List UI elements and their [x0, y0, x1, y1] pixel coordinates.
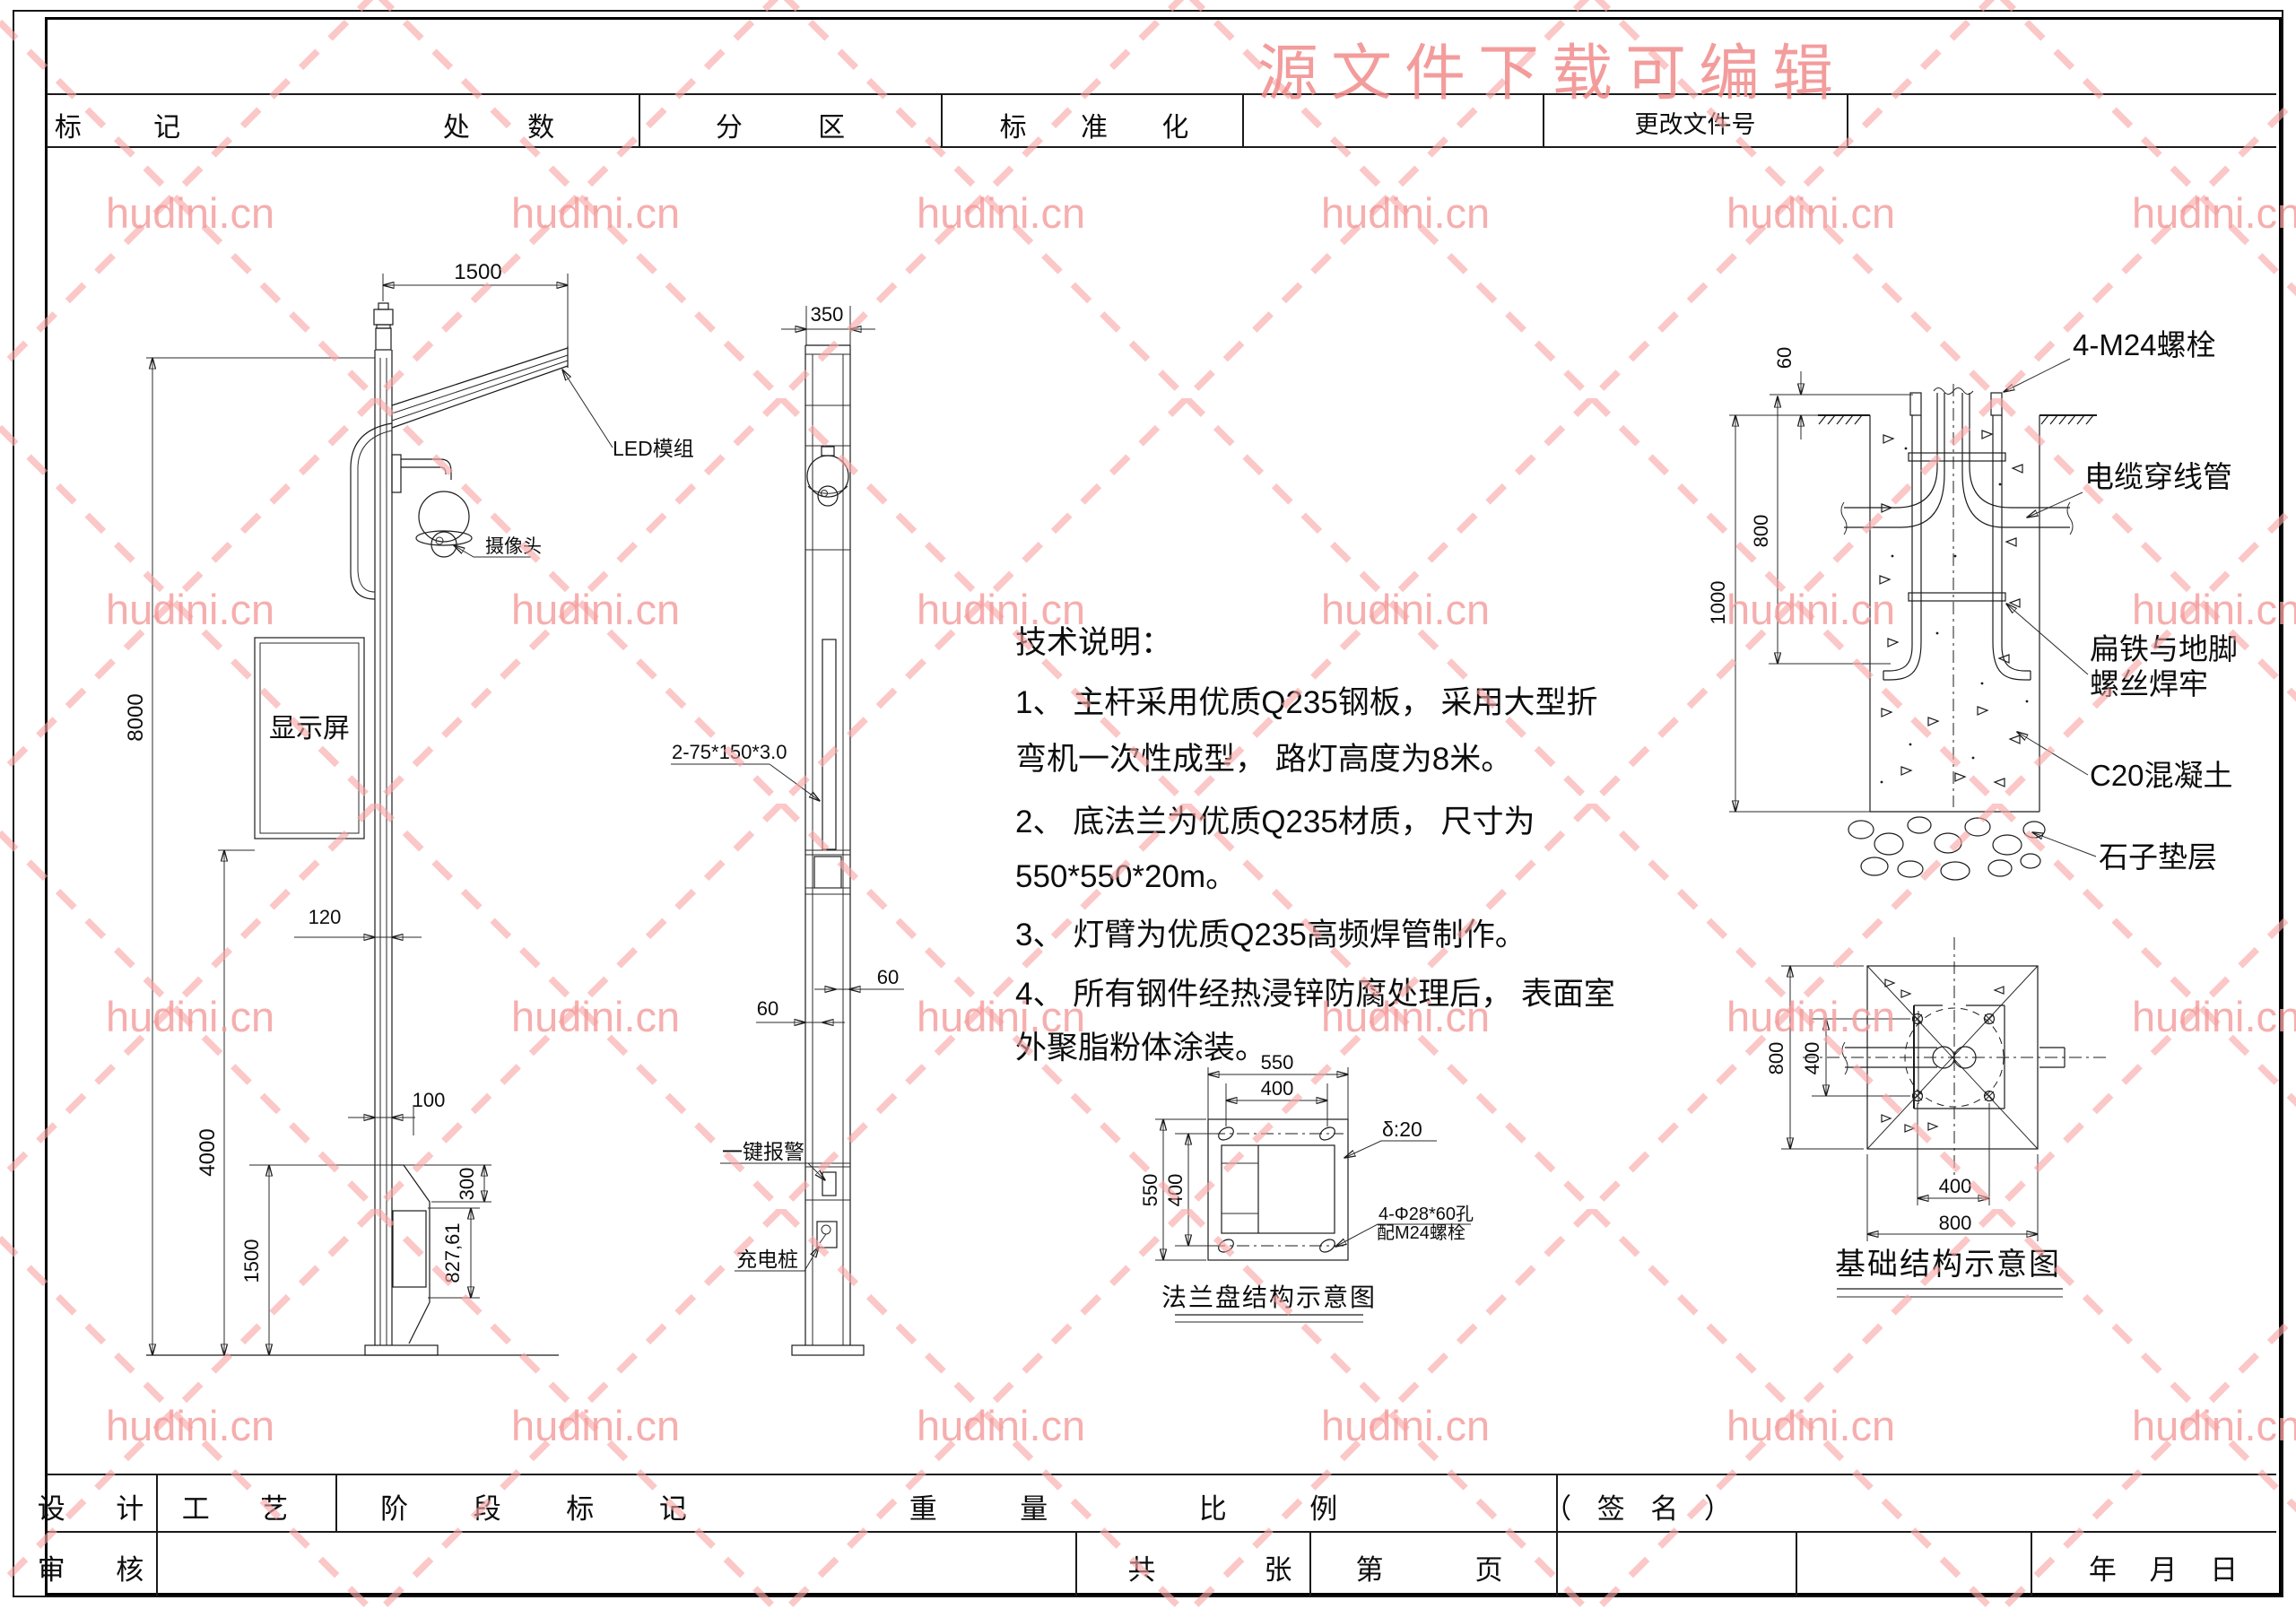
- label-page-suffix: 页: [1475, 1547, 1503, 1587]
- sheet-inner-border: [45, 17, 2282, 1596]
- divider: [1242, 95, 1244, 146]
- divider: [1796, 1533, 1797, 1596]
- divider: [941, 95, 943, 146]
- bottom-block-row1: 设 计 工 艺 阶 段 标 记 重 量 比 例 （ 签 名 ）: [47, 1475, 2276, 1531]
- label-scale: 比 例: [1199, 1486, 1376, 1526]
- divider: [1556, 1533, 1558, 1596]
- divider: [639, 95, 640, 146]
- label-process: 工 艺: [182, 1486, 310, 1526]
- drawing-sheet: 1500 LED模组 摄像头: [0, 0, 2296, 1609]
- label-stage-mark: 阶 段 标 记: [380, 1486, 716, 1526]
- label-page-prefix: 第: [1356, 1547, 1384, 1587]
- divider: [1847, 95, 1848, 146]
- label-total-sheets-prefix: 共: [1128, 1547, 1156, 1587]
- top-bar-count: 处 数: [443, 105, 579, 144]
- divider: [1075, 1533, 1077, 1596]
- label-signature: （ 签 名 ）: [1544, 1486, 1741, 1526]
- label-total-sheets-suffix: 张: [1265, 1547, 1292, 1587]
- top-bar-zone: 分 区: [716, 105, 879, 144]
- label-weight: 重 量: [909, 1486, 1086, 1526]
- divider: [1543, 95, 1544, 146]
- label-design: 设 计: [38, 1486, 166, 1526]
- bottom-title-block: 设 计 工 艺 阶 段 标 记 重 量 比 例 （ 签 名 ） 审 核 共 张 …: [47, 1474, 2276, 1595]
- divider: [2031, 1533, 2032, 1596]
- top-bar-standardization: 标 准 化: [1000, 105, 1213, 144]
- bottom-block-row2: 审 核 共 张 第 页 年 月 日: [47, 1531, 2276, 1596]
- label-review: 审 核: [38, 1547, 166, 1587]
- top-bar-change-doc-no: 更改文件号: [1635, 105, 1756, 140]
- label-date: 年 月 日: [2089, 1547, 2250, 1587]
- divider: [1309, 1533, 1311, 1596]
- divider: [335, 1475, 337, 1531]
- top-title-strip: 标 记 处 数 分 区 标 准 化 更改文件号: [47, 93, 2276, 148]
- top-bar-mark: 标 记: [55, 105, 213, 144]
